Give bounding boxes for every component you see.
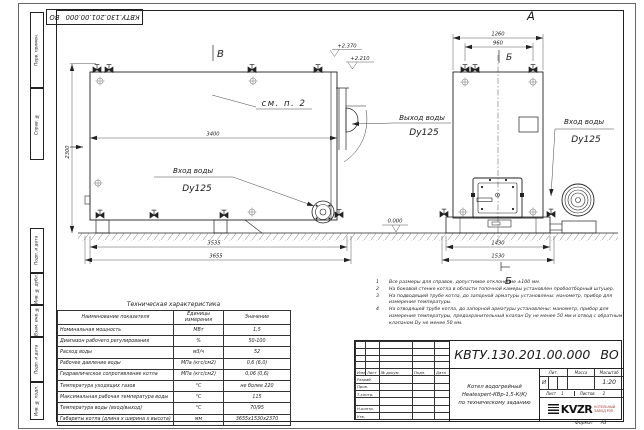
format-value: А3 [601,421,607,426]
view-mark-v: В [217,49,224,60]
scale-value: 1:20 [595,377,623,390]
side-view-lifting-icons [94,77,258,217]
tech-table-title: Техническая характеристика [57,301,290,308]
dim-2300: 2300 [65,145,71,159]
boiler-front-view [446,55,596,242]
dim-3535: 3535 [207,241,221,247]
param-value: 70/95 [224,403,291,414]
param-units: °С [174,403,224,414]
format-word: Формат [575,421,593,426]
water-outlet-dn: Dy125 [409,128,439,138]
param-units: м3/ч [174,347,224,358]
note-text: Все размеры для справок, допустимое откл… [389,280,624,287]
kvzr-logo-icon [548,404,559,415]
doc-name-line3: по техническому заданию [458,399,530,407]
table-row: Температура воды (вход/выход)°С70/95 [58,403,291,414]
param-value: 0,6 (6,0) [224,358,291,369]
tech-table: Наименование показателя Единицы измерени… [57,310,291,426]
table-row: Температура уходящих газов°Сне более 220 [58,380,291,391]
param-value: 1,5 [224,325,291,336]
param-value: не более 220 [224,380,291,391]
param-units: МПа (кгс/см2) [174,369,224,380]
param-name: Диапазон рабочего регулирования [58,336,174,347]
param-name: Номинальная мощность [58,325,174,336]
note-number: 2 [376,287,389,294]
doc-name-line2: Heatexpert-КВр-1,5-К(К) [462,391,527,399]
document-name: Котел водогрейный Heatexpert-КВр-1,5-К(К… [449,369,539,421]
view-mark-a: А [526,9,535,23]
note-4: 4 На отводящей трубе котла, до запорной … [376,307,624,327]
dim-1530: 1530 [491,254,505,260]
furnace-door [471,178,524,218]
front-view-valve-icons [440,65,555,217]
note-number: 1 [376,280,389,287]
note-1: 1 Все размеры для справок, допустимое от… [376,280,624,287]
document-designation: КВТУ.130.201.00.000 ВО [449,341,623,369]
kvzr-logo-text: KVZR [561,403,592,416]
title-block: Изм Лист № докум. Подп. Дата Разраб. Про… [354,340,622,420]
param-value: 115 [224,392,291,403]
sheet-label: Лист [546,391,556,396]
lit-mass-scale-header: Лит. Масса Масштаб [540,369,623,377]
tech-col-value: Значение [224,311,291,325]
sheets-label: Листов [574,391,595,396]
kvzr-logo-subtitle: КОТЕЛЬНЫЙ ЗАВОД РЭП [594,405,615,413]
sheets-value: 2 [603,391,606,396]
revision-grid: Изм Лист № докум. Подп. Дата Разраб. Про… [355,341,449,421]
mass-value [568,377,596,390]
scale-header: Масштаб [595,369,623,377]
level-2210: +2.210 [350,56,370,62]
table-row: Габариты котла (длина х ширина х высота)… [58,414,291,425]
param-name: Температура уходящих газов [58,380,174,391]
param-name: Гидравлическое сопротивление котла [58,369,174,380]
level-zero: 0.000 [388,219,404,225]
param-name: Расход воды [58,347,174,358]
blower-fan [550,184,596,233]
sign-razrab: Разраб. [356,376,380,383]
lit-mass-scale-values: И 1:20 [540,377,623,390]
rev-header-doc: № докум. [380,369,413,376]
tech-col-units: Единицы измерения [174,311,224,325]
table-row: Расход водым3/ч52 [58,347,291,358]
sign-nkontr: Н.контр. [356,405,380,412]
water-inlet-label: Вход воды [173,166,213,175]
dim-1430: 1430 [491,241,505,247]
table-row: Максимальная рабочая температура воды°С1… [58,392,291,403]
table-row: Диапазон рабочего регулирования%50-100 [58,336,291,347]
tech-col-name: Наименование показателя [58,311,174,325]
param-value: 3655х1530х2370 [224,414,291,425]
water-outlet-label: Выход воды [399,113,445,122]
sheet-value: 1 [561,391,564,396]
param-units: МВт [174,325,224,336]
note-text: На отводящей трубе котла, до запорной ар… [389,307,624,327]
param-value: 50-100 [224,336,291,347]
company-logo: KVZR КОТЕЛЬНЫЙ ЗАВОД РЭП [540,398,623,421]
param-units: МПа (кгс/см2) [174,358,224,369]
note-3: 3 На подводящей трубе котла, до запорной… [376,294,624,308]
water-inlet-dn: Dy125 [182,184,212,194]
param-units: °С [174,392,224,403]
rev-header-podp: Подп. [413,369,435,376]
tech-characteristics: Техническая характеристика Наименование … [57,301,290,426]
note-text: На боковой стенке котла в области топочн… [389,287,624,294]
param-units: °С [174,380,224,391]
sign-prov: Пров. [356,383,380,390]
title-block-right: Лит. Масса Масштаб И 1:20 Лист 1 Листов … [539,369,623,421]
side-view-valve-icons [93,65,343,218]
table-row: Гидравлическое сопротивление котлаМПа (к… [58,369,291,380]
logo-sub-line2: ЗАВОД РЭП [594,409,615,413]
dim-3655: 3655 [209,254,223,260]
level-2370: +2.370 [337,44,357,50]
note-number: 3 [376,294,389,308]
inlet-flange [312,201,334,223]
rev-header-izm: Изм [356,369,366,376]
param-value: 52 [224,347,291,358]
sheet-row: Лист 1 Листов 2 [540,390,623,398]
water-inlet2-label: Вход воды [564,117,604,126]
param-units: мм [174,414,224,425]
dim-1260: 1260 [491,32,505,38]
param-name: Рабочее давление воды [58,358,174,369]
sign-utv: Утв. [356,412,380,419]
section-mark-b-top: Б [506,53,512,63]
callouts [154,95,614,206]
param-units: % [174,336,224,347]
param-name: Температура воды (вход/выход) [58,403,174,414]
revision-table: Изм Лист № докум. Подп. Дата Разраб. Про… [355,341,450,420]
mass-header: Масса [568,369,596,377]
param-name: Максимальная рабочая температура воды [58,392,174,403]
water-inlet2-dn: Dy125 [571,135,601,145]
sign-tkontr: Т.контр. [356,391,380,398]
dim-3400: 3400 [206,132,220,138]
format-label: Формат А3 [575,421,607,426]
lit-header: Лит. [540,369,568,377]
rev-header-list: Лист [366,369,380,376]
ground-line [78,233,618,241]
rev-header-data: Дата [435,369,450,376]
table-row: Рабочее давление водыМПа (кгс/см2)0,6 (6… [58,358,291,369]
doc-name-line1: Котел водогрейный [467,383,521,391]
table-row: Номинальная мощностьМВт1,5 [58,325,291,336]
drawing-sheet: Перв. примен. Справ. № Подп. и дата Инв.… [0,0,644,430]
lit-value: И [540,377,549,390]
param-value: 0,06 (0,6) [224,369,291,380]
param-name: Габариты котла (длина х ширина х высота) [58,414,174,425]
notes-list: 1 Все размеры для справок, допустимое от… [376,280,624,328]
note-text: На подводящей трубе котла, до запорной а… [389,294,624,308]
note-2: 2 На боковой стенке котла в области топо… [376,287,624,294]
note-number: 4 [376,307,389,327]
callout-see-note-2: см. п. 2 [262,99,307,109]
dim-960: 960 [493,41,504,47]
boiler-side-view [85,72,367,233]
